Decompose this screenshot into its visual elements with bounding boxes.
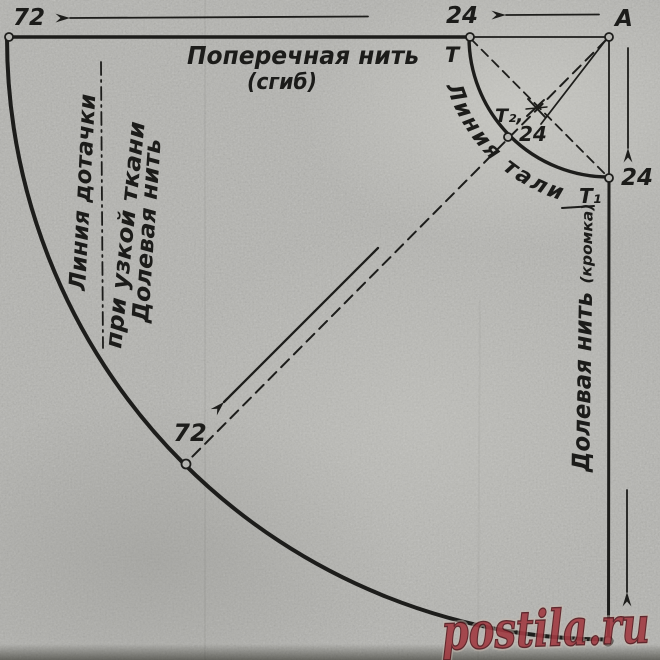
label-point-t: Т xyxy=(445,43,461,67)
label-crosswise-grain: Поперечная нить xyxy=(187,41,419,70)
right-selvage-edge-line xyxy=(609,178,610,640)
label-24-t2: 24 xyxy=(519,122,547,146)
label-lengthwise-right-main: Долевая нить xyxy=(567,292,598,473)
pattern-scan: 72 Поперечная нить (сгиб) Т 24 А 24 Т₁ Т… xyxy=(0,0,660,660)
label-72-top: 72 xyxy=(13,5,45,31)
label-24-top: 24 xyxy=(446,3,478,29)
watermark-text: postila.ru xyxy=(441,595,651,660)
point-marker-72-hem xyxy=(182,460,191,469)
point-marker-t2 xyxy=(504,133,512,141)
point-marker-t1 xyxy=(605,174,613,182)
point-marker-a xyxy=(605,33,613,41)
label-72-hem: 72 xyxy=(173,419,206,447)
label-fold: (сгиб) xyxy=(247,70,317,95)
label-point-a: А xyxy=(613,6,633,32)
point-marker-72-top xyxy=(5,33,13,41)
top-measure-arrow-short xyxy=(506,15,599,16)
watermark: postila.ru postila.ru xyxy=(441,595,651,660)
label-selvage: (кромка) xyxy=(577,203,596,283)
pattern-diagram: 72 Поперечная нить (сгиб) Т 24 А 24 Т₁ Т… xyxy=(0,0,660,660)
point-marker-t xyxy=(466,33,474,41)
label-24-right: 24 xyxy=(621,165,653,191)
